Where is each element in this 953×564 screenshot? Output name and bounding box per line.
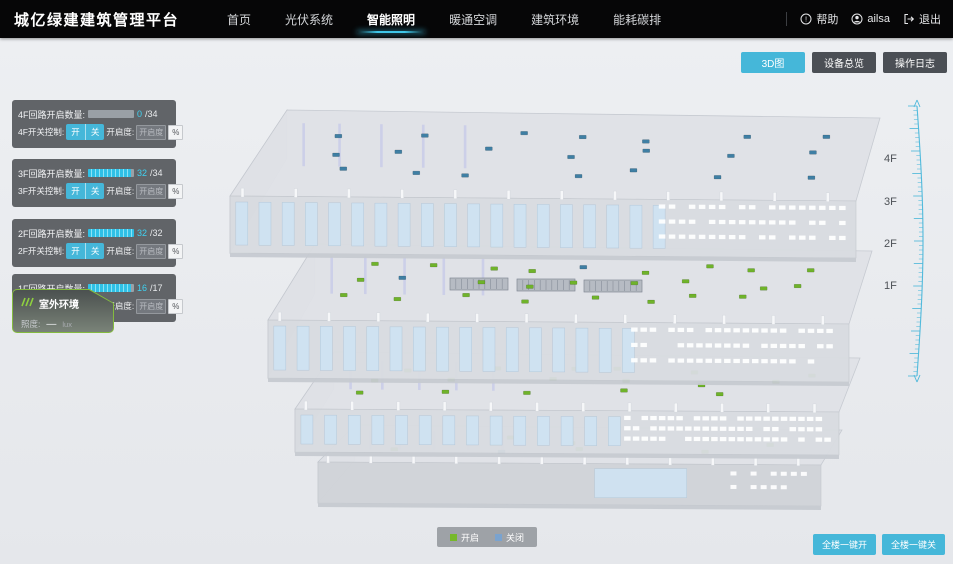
light-marker bbox=[478, 280, 485, 284]
light-marker bbox=[823, 135, 830, 139]
main-nav: 首页 光伏系统 智能照明 暖通空调 建筑环境 能耗碳排 bbox=[225, 0, 663, 39]
switch-on-button[interactable]: 开 bbox=[66, 243, 86, 259]
top-bar: 城亿绿建建筑管理平台 首页 光伏系统 智能照明 暖通空调 建筑环境 能耗碳排 !… bbox=[0, 0, 953, 38]
illuminance-label: 照度: bbox=[21, 318, 40, 330]
circuits-total: /32 bbox=[150, 228, 163, 238]
dim-level-input[interactable] bbox=[136, 125, 166, 140]
switch-off-button[interactable]: 关 bbox=[86, 243, 105, 259]
light-marker bbox=[689, 294, 696, 298]
nav-item-hvac[interactable]: 暖通空调 bbox=[447, 0, 499, 39]
circuit-progress-bar bbox=[88, 284, 134, 292]
dim-level-label: 开启度: bbox=[106, 126, 134, 138]
light-marker bbox=[648, 300, 655, 304]
light-marker bbox=[620, 389, 627, 393]
legend-off-label: 关闭 bbox=[506, 531, 524, 544]
light-marker bbox=[739, 295, 746, 299]
light-marker bbox=[421, 134, 428, 138]
light-marker bbox=[580, 265, 587, 269]
all-on-button[interactable]: 全楼一键开 bbox=[813, 534, 876, 555]
help-icon: ! bbox=[800, 13, 812, 25]
nav-item-pv-system[interactable]: 光伏系统 bbox=[283, 0, 335, 39]
light-marker bbox=[630, 168, 637, 172]
light-marker bbox=[463, 293, 470, 297]
switch-control-label: 2F开关控制: bbox=[18, 245, 64, 257]
floor-panel-2f: 2F回路开启数量: 32/32 2F开关控制: 开 关 开启度: % bbox=[12, 219, 176, 267]
light-marker bbox=[485, 147, 492, 151]
light-marker bbox=[526, 285, 533, 289]
outdoor-env-panel: 室外环境 照度: — lux bbox=[12, 289, 114, 333]
header-separator bbox=[786, 12, 787, 26]
nav-item-energy-carbon[interactable]: 能耗碳排 bbox=[611, 0, 663, 39]
light-marker bbox=[744, 135, 751, 139]
legend-item-on: 开启 bbox=[450, 531, 479, 544]
floor-axis-label-1f[interactable]: 1F bbox=[884, 280, 897, 292]
switch-on-button[interactable]: 开 bbox=[66, 124, 86, 140]
light-marker bbox=[399, 276, 406, 280]
legend-item-off: 关闭 bbox=[495, 531, 524, 544]
help-label: 帮助 bbox=[816, 11, 838, 27]
logout-button[interactable]: 退出 bbox=[903, 11, 941, 27]
circuit-progress-bar bbox=[88, 229, 134, 237]
light-marker bbox=[760, 287, 767, 291]
user-menu[interactable]: ailsa bbox=[851, 13, 890, 25]
light-marker bbox=[357, 278, 364, 282]
outdoor-env-panel-inner: 室外环境 照度: — lux bbox=[13, 290, 113, 332]
circuits-total: /17 bbox=[150, 283, 163, 293]
dim-level-label: 开启度: bbox=[106, 185, 134, 197]
user-icon bbox=[851, 13, 863, 25]
circuits-total: /34 bbox=[145, 109, 158, 119]
device-overview-button[interactable]: 设备总览 bbox=[812, 52, 876, 73]
switch-control-label: 4F开关控制: bbox=[18, 126, 64, 138]
dim-level-label: 开启度: bbox=[106, 245, 134, 257]
light-marker bbox=[340, 293, 347, 297]
light-marker bbox=[333, 153, 340, 157]
light-marker bbox=[522, 300, 529, 304]
legend-on-swatch bbox=[450, 534, 457, 541]
building-floor-3F bbox=[268, 244, 872, 386]
light-marker bbox=[394, 297, 401, 301]
dim-level-input[interactable] bbox=[136, 184, 166, 199]
circuit-count-label: 2F回路开启数量: bbox=[18, 227, 85, 240]
circuit-count-label: 4F回路开启数量: bbox=[18, 108, 85, 121]
nav-item-building-env[interactable]: 建筑环境 bbox=[529, 0, 581, 39]
logout-label: 退出 bbox=[919, 11, 941, 27]
light-marker bbox=[523, 391, 530, 395]
circuit-progress-bar bbox=[88, 110, 134, 118]
light-marker bbox=[395, 150, 402, 154]
all-off-button[interactable]: 全楼一键关 bbox=[882, 534, 945, 555]
floor-axis-label-4f[interactable]: 4F bbox=[884, 153, 897, 165]
whole-building-controls: 全楼一键开 全楼一键关 bbox=[813, 534, 945, 555]
light-marker bbox=[570, 281, 577, 285]
light-marker bbox=[727, 154, 734, 158]
floor-ruler-slider[interactable] bbox=[901, 98, 945, 386]
light-marker bbox=[631, 281, 638, 285]
view-3d-button[interactable]: 3D图 bbox=[741, 52, 805, 73]
light-marker bbox=[808, 176, 815, 180]
dim-level-input[interactable] bbox=[136, 299, 166, 314]
percent-button[interactable]: % bbox=[168, 244, 183, 259]
percent-button[interactable]: % bbox=[168, 125, 183, 140]
outdoor-env-title: 室外环境 bbox=[39, 296, 79, 311]
light-marker bbox=[794, 284, 801, 288]
floor-panel-3f: 3F回路开启数量: 32/34 3F开关控制: 开 关 开启度: % bbox=[12, 159, 176, 207]
light-marker bbox=[442, 390, 449, 394]
light-marker bbox=[809, 151, 816, 155]
logout-icon bbox=[903, 13, 915, 25]
light-marker bbox=[568, 155, 575, 159]
circuit-count-label: 3F回路开启数量: bbox=[18, 167, 85, 180]
circuit-progress-bar bbox=[88, 169, 134, 177]
building-3d-view[interactable] bbox=[215, 88, 895, 518]
circuits-total: /34 bbox=[150, 168, 163, 178]
nav-item-smart-lighting[interactable]: 智能照明 bbox=[365, 0, 417, 39]
nav-item-home[interactable]: 首页 bbox=[225, 0, 253, 39]
light-marker bbox=[642, 271, 649, 275]
light-status-legend: 开启 关闭 bbox=[437, 527, 537, 547]
user-area: ! 帮助 ailsa 退出 bbox=[786, 11, 941, 27]
view-switcher: 3D图 设备总览 操作日志 bbox=[741, 52, 947, 73]
light-marker bbox=[642, 140, 649, 144]
light-marker bbox=[592, 296, 599, 300]
building-floor-4F bbox=[230, 110, 880, 262]
switch-buttons: 开 关 bbox=[66, 124, 104, 140]
dim-level-input[interactable] bbox=[136, 244, 166, 259]
switch-buttons: 开 关 bbox=[66, 243, 104, 259]
circuit-progress-fill bbox=[88, 284, 131, 292]
light-marker bbox=[529, 269, 536, 273]
light-marker bbox=[413, 171, 420, 175]
light-marker bbox=[430, 263, 437, 267]
switch-buttons: 开 关 bbox=[66, 183, 104, 199]
light-marker bbox=[706, 265, 713, 269]
light-marker bbox=[335, 134, 342, 138]
light-marker bbox=[371, 262, 378, 266]
circuit-progress-fill bbox=[88, 229, 134, 237]
svg-text:!: ! bbox=[805, 15, 807, 24]
help-button[interactable]: ! 帮助 bbox=[800, 11, 838, 27]
circuits-on-count: 32 bbox=[137, 228, 147, 238]
percent-button[interactable]: % bbox=[168, 299, 183, 314]
circuits-on-count: 0 bbox=[137, 109, 142, 119]
illuminance-value: — bbox=[46, 319, 56, 330]
light-marker bbox=[714, 175, 721, 179]
floor-axis-label-2f[interactable]: 2F bbox=[884, 238, 897, 250]
username: ailsa bbox=[867, 13, 890, 25]
light-marker bbox=[807, 268, 814, 272]
switch-on-button[interactable]: 开 bbox=[66, 183, 86, 199]
light-marker bbox=[579, 135, 586, 139]
circuits-on-count: 32 bbox=[137, 168, 147, 178]
light-marker bbox=[521, 131, 528, 135]
circuits-on-count: 16 bbox=[137, 283, 147, 293]
outdoor-env-icon bbox=[21, 297, 34, 310]
light-marker bbox=[682, 279, 689, 283]
light-marker bbox=[716, 392, 723, 396]
light-marker bbox=[491, 267, 498, 271]
light-marker bbox=[340, 167, 347, 171]
switch-control-label: 3F开关控制: bbox=[18, 185, 64, 197]
light-marker bbox=[643, 149, 650, 153]
operation-log-button[interactable]: 操作日志 bbox=[883, 52, 947, 73]
light-marker bbox=[748, 269, 755, 273]
switch-off-button[interactable]: 关 bbox=[86, 124, 105, 140]
floor-axis-label-3f[interactable]: 3F bbox=[884, 196, 897, 208]
light-marker bbox=[356, 391, 363, 395]
percent-button[interactable]: % bbox=[168, 184, 183, 199]
floor-panel-4f: 4F回路开启数量: 0/34 4F开关控制: 开 关 开启度: % bbox=[12, 100, 176, 148]
app-title: 城亿绿建建筑管理平台 bbox=[14, 9, 179, 30]
light-marker bbox=[462, 174, 469, 178]
illuminance-unit: lux bbox=[62, 320, 72, 329]
light-marker bbox=[575, 174, 582, 178]
legend-off-swatch bbox=[495, 534, 502, 541]
legend-on-label: 开启 bbox=[461, 531, 479, 544]
switch-off-button[interactable]: 关 bbox=[86, 183, 105, 199]
circuit-progress-fill bbox=[88, 169, 131, 177]
